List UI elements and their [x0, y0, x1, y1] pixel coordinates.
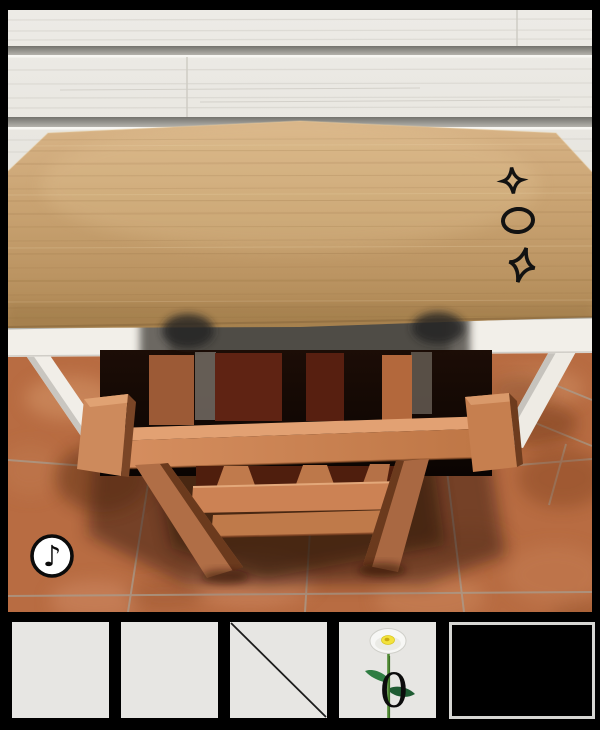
eighth-note-icon: ♪ [43, 539, 62, 573]
tabletop[interactable] [8, 120, 592, 348]
chair-backrest-stile-left [149, 355, 194, 425]
room-scene: ♪ [8, 10, 592, 612]
chair-backrest-slat [215, 353, 282, 421]
chair-post-left[interactable] [77, 394, 136, 477]
music-toggle-button[interactable]: ♪ [32, 536, 72, 576]
chair-backrest-stile-right [382, 355, 412, 421]
table-back-leg-left [195, 352, 216, 420]
chair-post-right[interactable] [465, 393, 523, 472]
inventory-slot-2[interactable] [121, 622, 218, 718]
chair-backrest-slat [306, 353, 344, 421]
inventory-slot-1[interactable] [12, 622, 109, 718]
flower-count-label: 0 [379, 668, 409, 715]
inventory-slot-3[interactable] [230, 622, 327, 718]
flower-head [370, 629, 406, 654]
game-screen: ♪ 0 [0, 0, 600, 730]
inventory-slot-4[interactable]: 0 [339, 622, 436, 718]
table-back-leg-right [411, 352, 432, 414]
item-view-box[interactable] [449, 622, 595, 719]
stick-item[interactable] [230, 622, 327, 718]
